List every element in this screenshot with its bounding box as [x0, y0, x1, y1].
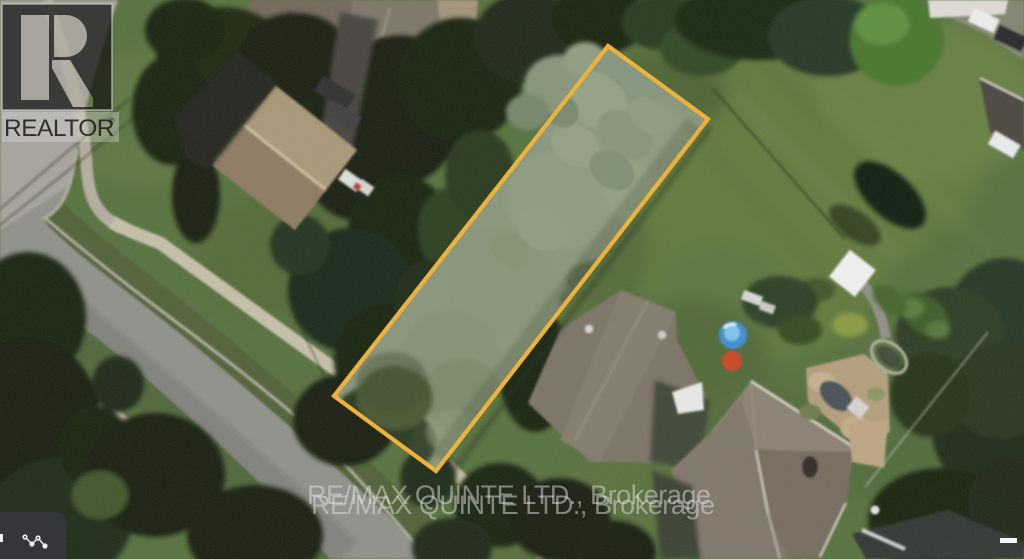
- svg-text:REALTOR: REALTOR: [4, 115, 114, 142]
- svg-text:®: ®: [108, 116, 115, 126]
- svg-text:RE/MAX QUINTE LTD., Brokerage: RE/MAX QUINTE LTD., Brokerage: [311, 490, 715, 520]
